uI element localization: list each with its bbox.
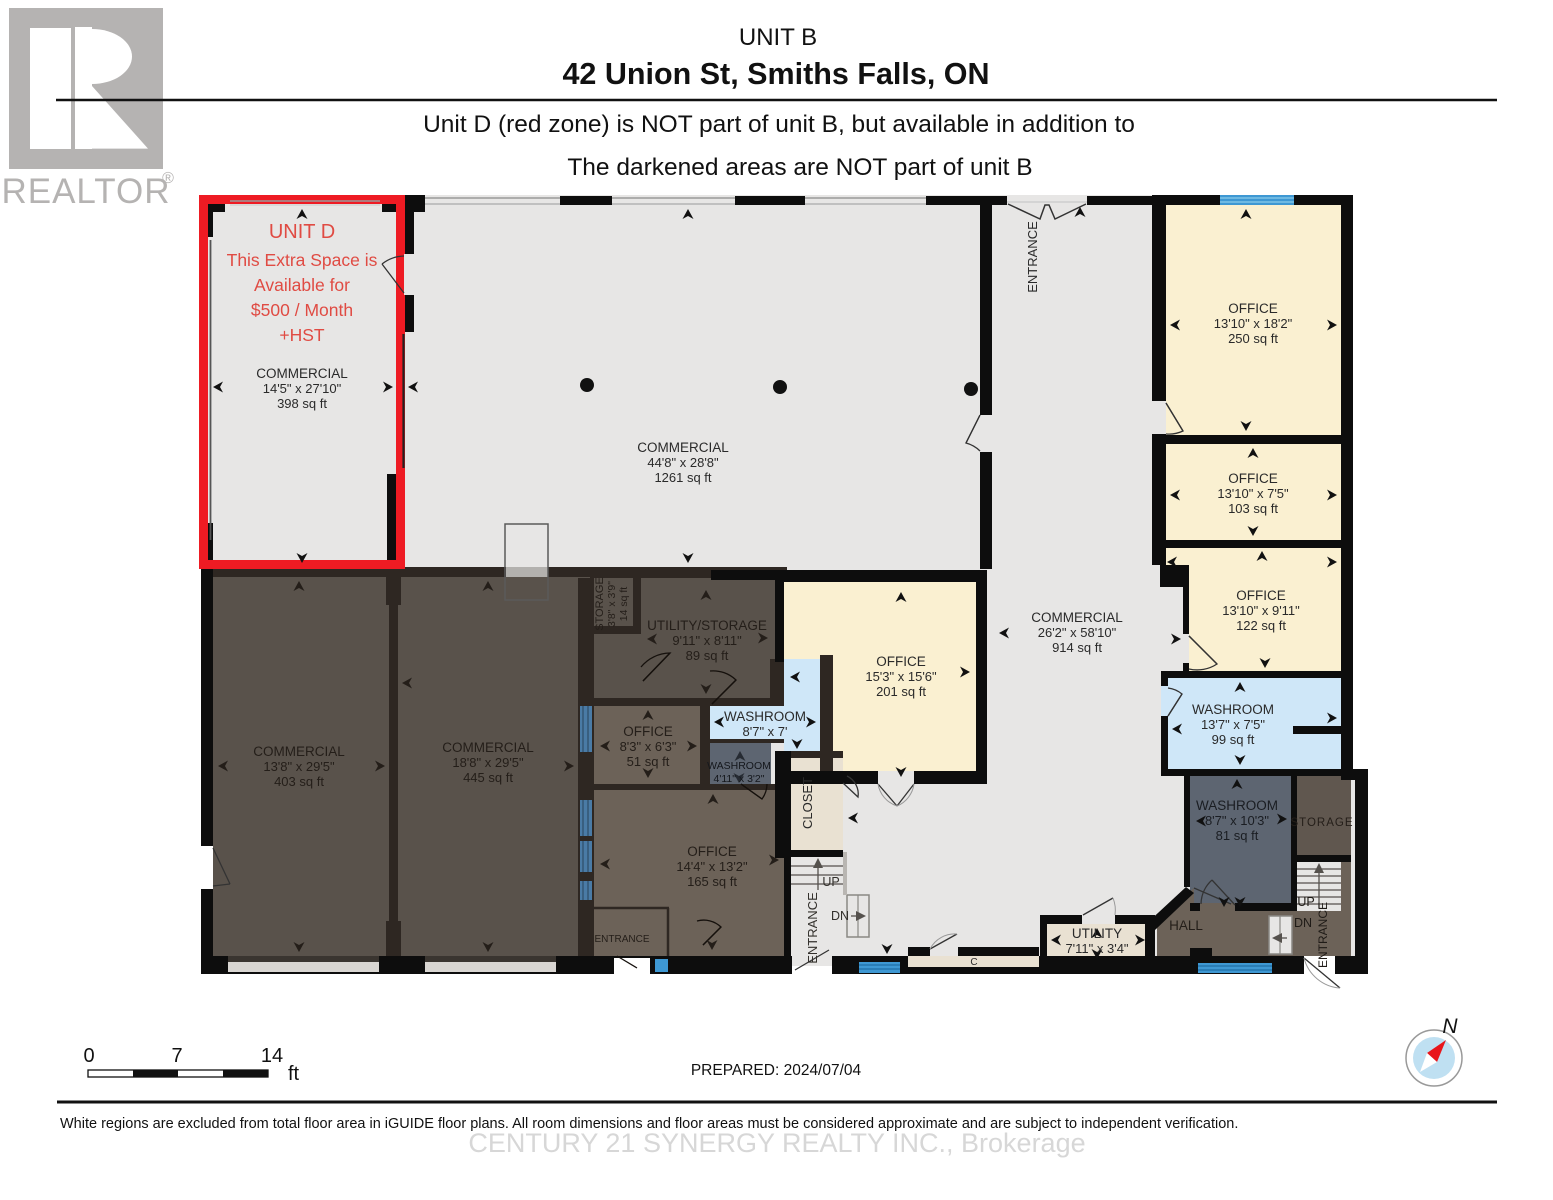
svg-text:COMMERCIAL: COMMERCIAL [256,366,348,381]
svg-text:122 sq ft: 122 sq ft [1236,618,1286,633]
svg-text:REALTOR: REALTOR [1,172,170,211]
svg-text:This Extra Space is: This Extra Space is [227,250,378,270]
svg-text:WASHROOM: WASHROOM [1192,702,1274,717]
svg-text:403 sq ft: 403 sq ft [274,774,324,789]
svg-text:N: N [1442,1015,1458,1038]
svg-text:13'10" x 18'2": 13'10" x 18'2" [1214,316,1293,331]
svg-text:13'8" x 29'5": 13'8" x 29'5" [263,759,335,774]
svg-text:UP: UP [1297,895,1314,909]
svg-text:OFFICE: OFFICE [1228,301,1278,316]
svg-text:13'10" x 9'11": 13'10" x 9'11" [1222,603,1300,618]
svg-text:165 sq ft: 165 sq ft [687,874,737,889]
svg-text:42 Union St, Smiths Falls, ON: 42 Union St, Smiths Falls, ON [562,57,989,91]
svg-text:18'8" x 29'5": 18'8" x 29'5" [452,755,524,770]
svg-text:14 sq ft: 14 sq ft [618,587,630,622]
svg-text:ENTRANCE: ENTRANCE [1025,221,1040,293]
svg-text:WASHROOM: WASHROOM [1196,798,1278,813]
svg-text:7'11" x 3'4": 7'11" x 3'4" [1065,941,1128,956]
svg-text:DN: DN [1294,916,1312,930]
svg-text:PREPARED: 2024/07/04: PREPARED: 2024/07/04 [691,1062,862,1079]
svg-text:13'7" x 7'5": 13'7" x 7'5" [1201,717,1265,732]
svg-text:$500 / Month: $500 / Month [251,300,353,320]
svg-text:COMMERCIAL: COMMERCIAL [442,740,534,755]
svg-text:ft: ft [288,1063,300,1085]
svg-text:81 sq ft: 81 sq ft [1216,828,1259,843]
svg-text:9'11" x 8'11": 9'11" x 8'11" [672,633,742,648]
svg-text:OFFICE: OFFICE [1228,471,1278,486]
svg-text:COMMERCIAL: COMMERCIAL [1031,610,1123,625]
svg-text:103 sq ft: 103 sq ft [1228,501,1278,516]
svg-text:14: 14 [261,1045,283,1067]
svg-text:UNIT D: UNIT D [269,221,335,243]
svg-text:+HST: +HST [279,325,325,345]
svg-text:Unit D (red zone) is NOT part: Unit D (red zone) is NOT part of unit B,… [423,111,1135,138]
svg-text:250 sq ft: 250 sq ft [1228,331,1278,346]
svg-text:The darkened areas are NOT par: The darkened areas are NOT part of unit … [567,154,1032,181]
svg-text:99 sq ft: 99 sq ft [1212,732,1255,747]
svg-text:3'8" x 3'9": 3'8" x 3'9" [606,581,618,627]
svg-text:®: ® [162,170,174,187]
svg-text:26'2" x 58'10": 26'2" x 58'10" [1038,625,1117,640]
svg-text:HALL: HALL [1169,918,1203,933]
svg-text:C: C [970,957,977,968]
svg-text:OFFICE: OFFICE [623,724,673,739]
svg-text:201 sq ft: 201 sq ft [876,684,926,699]
svg-text:13'10" x 7'5": 13'10" x 7'5" [1217,486,1289,501]
svg-text:89 sq ft: 89 sq ft [686,648,729,663]
svg-text:4'11" x 3'2": 4'11" x 3'2" [714,773,765,785]
svg-text:COMMERCIAL: COMMERCIAL [253,744,345,759]
svg-text:8'3" x 6'3": 8'3" x 6'3" [620,739,677,754]
svg-text:CENTURY 21 SYNERGY REALTY INC.: CENTURY 21 SYNERGY REALTY INC., Brokerag… [468,1128,1085,1158]
svg-text:COMMERCIAL: COMMERCIAL [637,440,729,455]
svg-text:44'8" x 28'8": 44'8" x 28'8" [647,455,719,470]
svg-text:WASHROOM: WASHROOM [707,760,771,772]
svg-text:UTILITY: UTILITY [1072,926,1122,941]
svg-text:8'7" x 7': 8'7" x 7' [743,724,788,739]
svg-text:398 sq ft: 398 sq ft [277,396,327,411]
svg-text:445 sq ft: 445 sq ft [463,770,513,785]
svg-text:STORAGE: STORAGE [594,577,606,631]
svg-text:WASHROOM: WASHROOM [724,709,806,724]
svg-text:UTILITY/STORAGE: UTILITY/STORAGE [647,618,767,633]
svg-text:14'5" x 27'10": 14'5" x 27'10" [263,381,342,396]
svg-text:DN: DN [831,909,849,923]
svg-text:51 sq ft: 51 sq ft [627,754,670,769]
svg-text:7: 7 [171,1045,182,1067]
svg-text:UNIT B: UNIT B [739,24,817,51]
svg-text:STORAGE: STORAGE [1290,817,1353,829]
svg-text:ENTRANCE: ENTRANCE [805,892,820,964]
svg-text:15'3" x 15'6": 15'3" x 15'6" [865,669,937,684]
svg-text:ENTRANCE: ENTRANCE [594,934,649,945]
svg-text:OFFICE: OFFICE [876,654,926,669]
svg-text:OFFICE: OFFICE [1236,588,1286,603]
svg-text:OFFICE: OFFICE [687,844,737,859]
svg-text:Available for: Available for [254,275,350,295]
svg-text:914 sq ft: 914 sq ft [1052,640,1102,655]
svg-text:UP: UP [822,875,839,889]
svg-text:1261 sq ft: 1261 sq ft [654,470,711,485]
svg-text:14'4" x 13'2": 14'4" x 13'2" [676,859,748,874]
svg-text:ENTRANCE: ENTRANCE [1316,902,1330,968]
svg-text:0: 0 [83,1045,94,1067]
svg-text:CLOSET: CLOSET [800,777,815,829]
svg-text:8'7" x 10'3": 8'7" x 10'3" [1205,813,1269,828]
